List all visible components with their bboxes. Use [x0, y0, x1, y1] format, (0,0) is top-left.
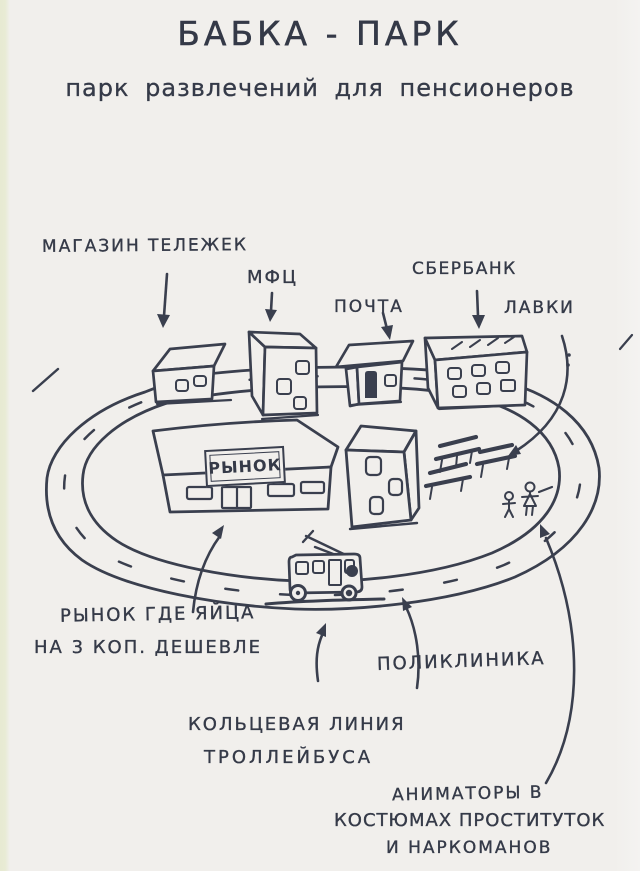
- arrow-to-sberbank: [472, 291, 485, 329]
- label-sberbank: СБЕРБАНК: [412, 261, 517, 278]
- label-animators-line2: КОСТЮМАХ ПРОСТИТУТОК: [334, 812, 605, 830]
- polyclinic-building-drawing: [346, 426, 419, 529]
- label-animators-line1: АНИМАТОРЫ В: [392, 785, 544, 805]
- sketch-drawing: [0, 0, 640, 871]
- map-title: БАБКА - ПАРК: [0, 14, 640, 53]
- stick-figures-drawing: [503, 483, 538, 518]
- arrow-to-cart-shop: [157, 274, 170, 328]
- trolleybus-drawing: [266, 531, 384, 604]
- map-subtitle: парк развлечений для пенсионеров: [0, 74, 640, 102]
- stray-dash-road: [539, 487, 552, 492]
- label-mfc: МФЦ: [247, 269, 298, 287]
- stray-pen-marks: [33, 335, 632, 492]
- sberbank-building-drawing: [425, 336, 527, 409]
- hand-drawn-park-map: БАБКА - ПАРК парк развлечений для пенсио…: [0, 0, 640, 871]
- arrow-to-post: [381, 313, 393, 340]
- stray-dash-right: [620, 335, 632, 349]
- arrow-to-polyclinic: [402, 597, 419, 688]
- label-ring-line1: КОЛЬЦЕВАЯ ЛИНИЯ: [188, 716, 406, 734]
- label-cart-shop: МАГАЗИН ТЕЛЕЖЕК: [42, 237, 248, 256]
- arrow-to-mfc: [265, 293, 277, 322]
- mfc-building-drawing: [249, 332, 318, 419]
- market-sign-text: РЫНОК: [209, 451, 280, 482]
- label-benches: ЛАВКИ: [504, 300, 575, 317]
- label-eggs-line2: НА 3 КОП. ДЕШЕВЛЕ: [34, 639, 262, 657]
- post-office-building-drawing: [336, 341, 413, 406]
- arrow-to-ring-road: [316, 623, 326, 681]
- label-eggs-line1: РЫНОК ГДЕ ЯЙЦА: [60, 604, 256, 625]
- label-ring-line2: ТРОЛЛЕЙБУСА: [204, 749, 373, 767]
- label-post: ПОЧТА: [334, 299, 404, 316]
- market-sign: РЫНОК: [204, 446, 286, 487]
- benches-drawing: [426, 437, 515, 499]
- stray-dash-top-left: [33, 369, 58, 391]
- label-animators-line3: И НАРКОМАНОВ: [386, 840, 552, 857]
